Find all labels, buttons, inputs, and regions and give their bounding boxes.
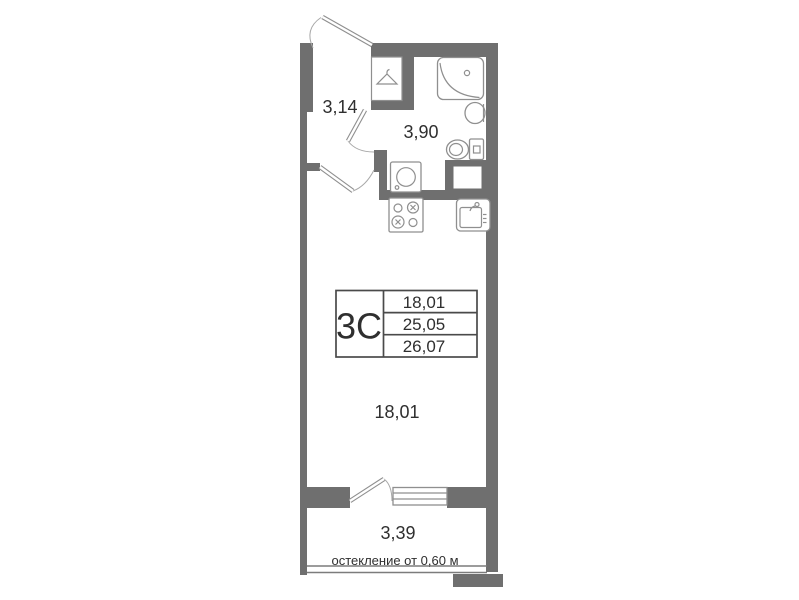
balcony-window-icon	[393, 488, 447, 506]
stamp-total-area-with-balcony: 26,07	[403, 337, 446, 356]
room-door-swing	[353, 170, 374, 191]
stamp-total-area: 25,05	[403, 315, 446, 334]
bathtub-icon	[438, 58, 484, 100]
bathroom-area-label: 3,90	[403, 122, 438, 142]
sink-icon	[465, 103, 485, 124]
unit-stamp-table: 3С 18,01 25,05 26,07	[336, 291, 477, 358]
floorplan-canvas: 3С 18,01 25,05 26,07 3,14 3,90 18,01 3,3…	[0, 0, 799, 600]
balcony-wall-right	[447, 487, 493, 508]
room-door-icon	[320, 167, 374, 191]
hallway-wall-stub	[300, 163, 320, 171]
balcony-wall-left	[300, 487, 350, 508]
balcony-door-swing	[384, 479, 392, 501]
room-area-label: 18,01	[374, 402, 419, 422]
toilet-icon	[447, 139, 484, 160]
balcony-corner-block	[453, 574, 503, 587]
balcony-door-icon	[350, 479, 392, 501]
stamp-living-area: 18,01	[403, 293, 446, 312]
vent-shaft-opening	[454, 167, 482, 189]
floorplan-drawing: 3С 18,01 25,05 26,07 3,14 3,90 18,01 3,3…	[0, 0, 799, 600]
bathroom-left-wall	[379, 168, 387, 192]
glazing-note-label: остекление от 0,60 м	[331, 553, 458, 568]
kitchen-sink-icon	[457, 199, 491, 231]
top-wall	[371, 43, 498, 57]
washing-machine-icon	[391, 162, 422, 192]
hallway-area-label: 3,14	[322, 97, 357, 117]
left-wall-pad	[300, 43, 313, 112]
balcony-area-label: 3,39	[380, 523, 415, 543]
bathroom-door-swing	[348, 141, 374, 152]
closet-bottom-wall	[371, 100, 414, 110]
unit-type-label: 3С	[336, 306, 382, 347]
stove-icon	[389, 198, 423, 232]
entrance-door-swing	[310, 18, 321, 49]
wardrobe	[372, 57, 403, 101]
entrance-door-icon	[310, 17, 372, 48]
